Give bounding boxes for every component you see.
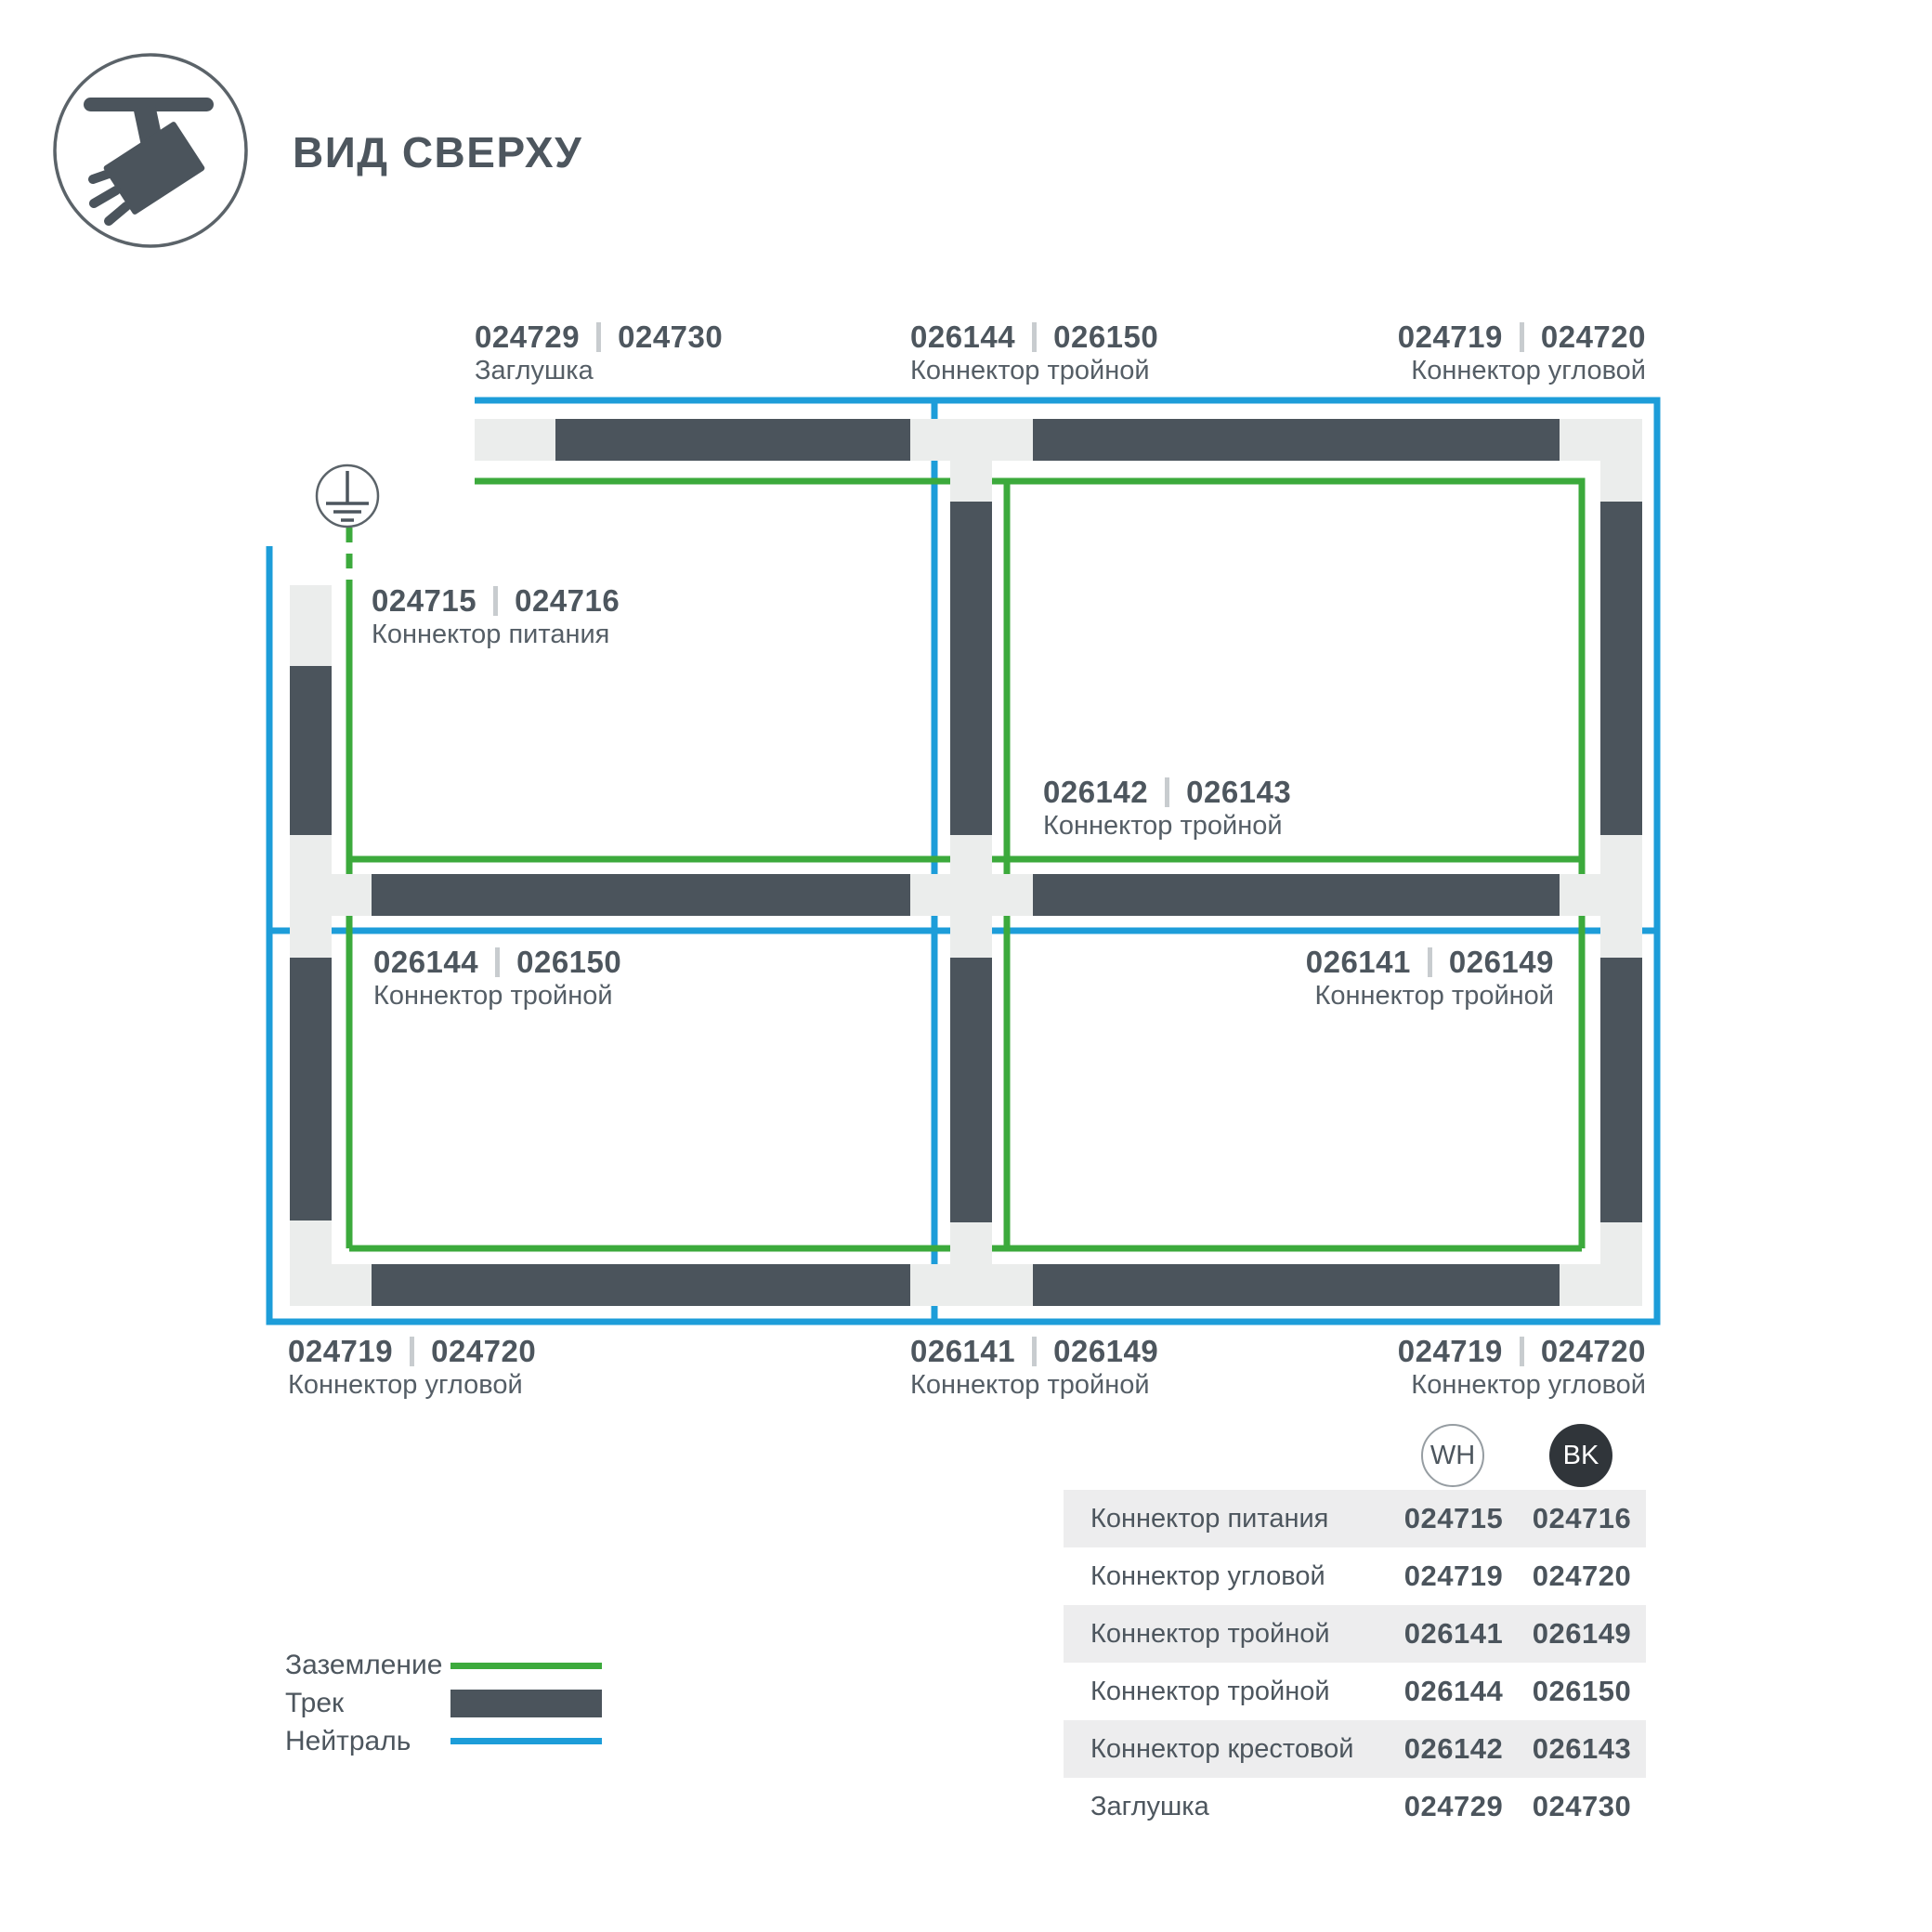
article-codes: 024719024720 — [1398, 321, 1646, 352]
article-codes: 024729024730 — [475, 321, 723, 352]
articles-table: Коннектор питания 024715 024716 Коннекто… — [1064, 1490, 1646, 1835]
legend-swatch-neutral-line — [450, 1738, 602, 1744]
part-name: Заглушка — [475, 357, 723, 385]
label-t-connector-bottom: 026141026149 Коннектор тройной — [910, 1336, 1158, 1400]
table-row: Коннектор тройной 026144 026150 — [1064, 1663, 1646, 1720]
page: ВИД СВЕРХУ 024729024730 Заглушка 0261440… — [0, 0, 1932, 1932]
table-part-name: Коннектор тройной — [1090, 1619, 1390, 1650]
part-name: Коннектор угловой — [288, 1371, 536, 1400]
table-part-name: Заглушка — [1090, 1792, 1390, 1822]
label-corner-connector-top-right: 024719024720 Коннектор угловой — [1398, 321, 1646, 385]
part-name: Коннектор тройной — [1043, 812, 1291, 841]
table-code-bk: 024716 — [1518, 1502, 1646, 1535]
part-name: Коннектор тройной — [910, 1371, 1158, 1400]
table-code-bk: 026143 — [1518, 1732, 1646, 1766]
code-separator — [1520, 322, 1524, 352]
table-code-bk: 024730 — [1518, 1790, 1646, 1823]
table-code-bk: 026150 — [1518, 1675, 1646, 1708]
table-part-name: Коннектор угловой — [1090, 1561, 1390, 1592]
page-title: ВИД СВЕРХУ — [293, 127, 582, 177]
code-separator — [1520, 1337, 1524, 1366]
legend-label-neutral: Нейтраль — [285, 1726, 411, 1757]
part-name: Коннектор угловой — [1398, 1371, 1646, 1400]
article-codes: 024719024720 — [1398, 1336, 1646, 1366]
article-codes: 026144026150 — [373, 946, 621, 977]
table-row: Коннектор крестовой 026142 026143 — [1064, 1720, 1646, 1778]
code-separator — [410, 1337, 414, 1366]
legend-label-ground: Заземление — [285, 1650, 442, 1681]
label-end-cap-top: 024729024730 Заглушка — [475, 321, 723, 385]
table-part-name: Коннектор питания — [1090, 1504, 1390, 1534]
label-corner-connector-bottom-right: 024719024720 Коннектор угловой — [1398, 1336, 1646, 1400]
table-code-wh: 024729 — [1390, 1790, 1518, 1823]
table-code-wh: 024715 — [1390, 1502, 1518, 1535]
part-name: Коннектор питания — [372, 620, 620, 649]
code-separator — [1165, 777, 1169, 807]
table-row: Коннектор питания 024715 024716 — [1064, 1490, 1646, 1547]
table-code-wh: 024719 — [1390, 1560, 1518, 1593]
part-name: Коннектор угловой — [1398, 357, 1646, 385]
table-part-name: Коннектор крестовой — [1090, 1734, 1390, 1765]
code-separator — [1032, 1337, 1037, 1366]
label-cross-connector-center: 026142026143 Коннектор тройной — [1043, 777, 1291, 841]
table-part-name: Коннектор тройной — [1090, 1677, 1390, 1707]
table-code-bk: 026149 — [1518, 1617, 1646, 1651]
code-separator — [495, 947, 500, 977]
label-corner-connector-bottom-left: 024719024720 Коннектор угловой — [288, 1336, 536, 1400]
label-power-connector: 024715024716 Коннектор питания — [372, 585, 620, 649]
part-name: Коннектор тройной — [1306, 982, 1554, 1011]
earth-ground-icon — [317, 465, 378, 527]
track-spotlight-top-view-icon — [55, 55, 246, 246]
table-code-wh: 026141 — [1390, 1617, 1518, 1651]
part-name: Коннектор тройной — [373, 982, 621, 1011]
article-codes: 026141026149 — [910, 1336, 1158, 1366]
part-name: Коннектор тройной — [910, 357, 1158, 385]
label-t-connector-right: 026141026149 Коннектор тройной — [1306, 946, 1554, 1011]
code-separator — [1032, 322, 1037, 352]
black-variant-badge: BK — [1549, 1424, 1612, 1487]
code-separator — [493, 586, 498, 616]
legend-swatch-ground-line — [450, 1663, 602, 1669]
label-t-connector-left: 026144026150 Коннектор тройной — [373, 946, 621, 1011]
code-separator — [1428, 947, 1432, 977]
article-codes: 026141026149 — [1306, 946, 1554, 977]
table-code-bk: 024720 — [1518, 1560, 1646, 1593]
article-codes: 026144026150 — [910, 321, 1158, 352]
article-codes: 026142026143 — [1043, 777, 1291, 807]
label-t-connector-top: 026144026150 Коннектор тройной — [910, 321, 1158, 385]
table-row: Коннектор угловой 024719 024720 — [1064, 1547, 1646, 1605]
table-row: Коннектор тройной 026141 026149 — [1064, 1605, 1646, 1663]
code-separator — [596, 322, 601, 352]
legend-swatch-track-bar — [450, 1690, 602, 1717]
article-codes: 024719024720 — [288, 1336, 536, 1366]
white-variant-badge: WH — [1421, 1424, 1484, 1487]
table-row: Заглушка 024729 024730 — [1064, 1778, 1646, 1835]
legend-label-track: Трек — [285, 1688, 344, 1719]
table-code-wh: 026144 — [1390, 1675, 1518, 1708]
article-codes: 024715024716 — [372, 585, 620, 616]
table-code-wh: 026142 — [1390, 1732, 1518, 1766]
